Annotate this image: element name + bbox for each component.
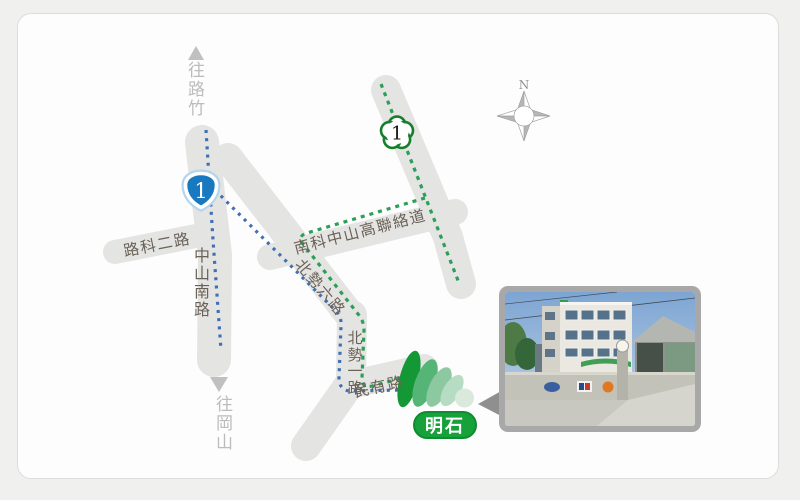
photo-gate-pillar [617,350,628,402]
destination-badge: 明石 [413,411,477,439]
arrow-north-icon [188,46,204,60]
arrow-south-icon [210,377,228,392]
direction-label-south: 往岡山 [215,396,234,453]
road-label-zhongshan-south: 中山南路 [193,247,211,319]
photo-gate-lamp [617,340,629,352]
compass-rose: N [497,78,550,141]
building-photo [499,286,701,432]
national-highway-1-shield: 1 [186,174,217,208]
compass-north-label: N [519,78,530,92]
provincial-highway-1-number: 1 [391,123,403,145]
national-highway-1-number: 1 [194,179,207,203]
building-photo-art [505,292,695,426]
direction-label-north: 往路竹 [187,62,206,119]
